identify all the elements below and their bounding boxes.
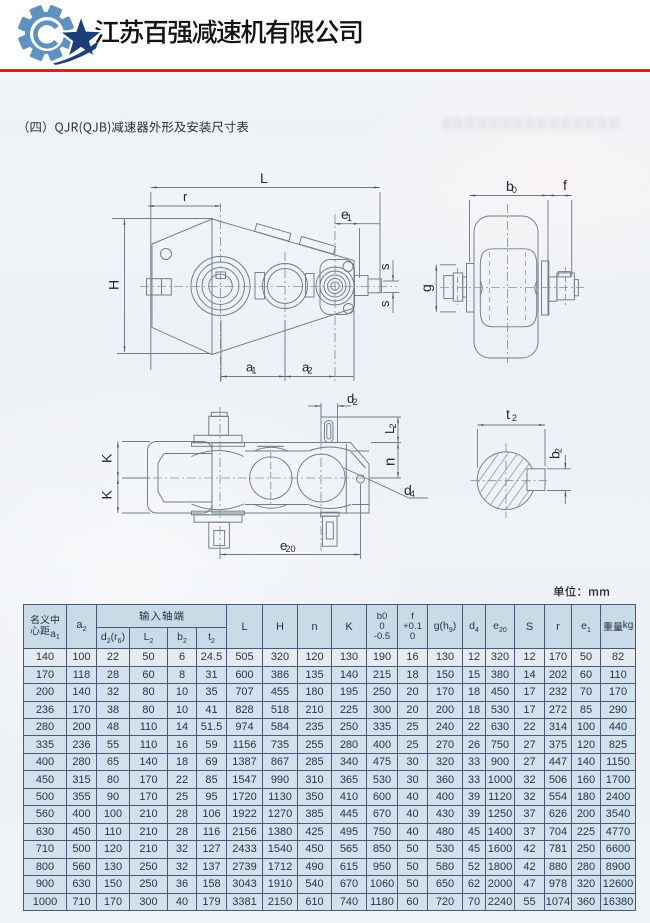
svg-text:L: L [260,170,268,186]
svg-text:t: t [506,406,510,422]
svg-text:H: H [106,280,122,290]
svg-text:1: 1 [251,366,256,376]
svg-text:f: f [563,177,567,193]
svg-text:r: r [183,189,188,204]
svg-text:2: 2 [307,366,312,376]
svg-text:2: 2 [554,448,564,453]
svg-text:n: n [382,458,399,466]
svg-text:0: 0 [512,185,517,195]
svg-text:1: 1 [347,213,352,223]
svg-text:s: s [377,263,392,270]
svg-text:20: 20 [285,544,295,554]
svg-text:K: K [99,490,115,500]
svg-text:s: s [377,300,392,307]
svg-text:2: 2 [512,413,517,423]
svg-text:4: 4 [410,489,415,499]
svg-text:2: 2 [388,424,398,429]
svg-text:K: K [99,453,115,463]
svg-text:2: 2 [352,397,357,407]
svg-text:g: g [418,284,434,292]
